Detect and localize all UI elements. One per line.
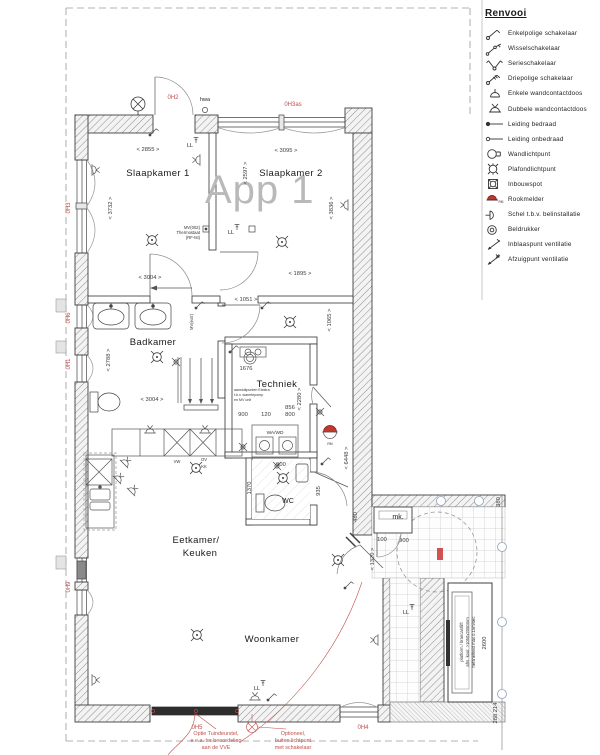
dimension: 1370	[247, 482, 253, 495]
ll-label: LL	[254, 686, 260, 692]
neighbour-wall-stubs	[56, 299, 66, 569]
washbasin-2	[135, 303, 171, 329]
dimension: < 3095 >	[275, 148, 299, 154]
legend-item-label: Wandlichtpunt	[508, 151, 550, 158]
socket-icon	[92, 674, 100, 686]
three-pole-switch-icon	[484, 72, 508, 86]
legend-item: Leiding onbedraad	[484, 132, 596, 147]
window-left-5	[77, 590, 93, 615]
wc-floor	[252, 460, 310, 519]
socket-icon	[370, 634, 378, 646]
rm-label: RM	[327, 442, 332, 446]
legend-item-label: Afzuigpunt ventilatie	[508, 256, 569, 263]
shower	[178, 357, 218, 410]
dimension: < 3836 >	[329, 196, 335, 220]
legend-item: Leiding bedraad	[484, 117, 596, 132]
window-left-4	[77, 558, 87, 582]
ceiling-light-icon	[277, 472, 289, 484]
socket-icon	[92, 164, 100, 176]
dimension: 935	[316, 486, 322, 496]
oven-label: OV	[201, 457, 207, 462]
tech-note: aansluitpunten Elektra	[234, 388, 270, 392]
legend-item: Wisselschakelaar	[484, 41, 596, 56]
two-way-switch-icon	[484, 42, 508, 56]
washer-label: WA/WD	[267, 430, 284, 436]
smoke-detector-icon	[322, 426, 338, 439]
hwa-pipe-icon	[202, 107, 207, 112]
dimension: < 6448 >	[344, 446, 350, 470]
room-label: Slaapkamer 1	[126, 168, 189, 179]
dimension: 1676	[240, 366, 253, 372]
option-note: buiten lichtpunt	[275, 738, 312, 744]
lift-note: afm. kooi: >1050x2050mm	[465, 617, 470, 667]
ll-label: LL	[403, 610, 409, 616]
ll-conduit-icon	[194, 138, 199, 144]
dimension: < 3004 >	[139, 275, 163, 281]
vent-icon	[239, 443, 247, 451]
legend-item: Enkele wandcontactdoos	[484, 86, 596, 101]
red-annotations	[151, 582, 362, 755]
legend-title: Renvooi	[485, 8, 596, 19]
optional-outdoor-light-icon	[247, 722, 258, 733]
socket-icon	[113, 471, 127, 485]
room-label: Slaapkamer 2	[259, 168, 322, 179]
recessed-spot-icon	[484, 177, 508, 191]
legend-item-label: Schel t.b.v. belinstallatie	[508, 211, 581, 218]
grid-bubble	[498, 543, 507, 552]
tech-note: en MV unit	[234, 398, 251, 402]
legend-item-label: Serieschakelaar	[508, 60, 556, 67]
kitchen-sink	[90, 489, 110, 500]
extract-vent-icon	[484, 253, 508, 267]
legend-item: Schel t.b.v. belinstallatie	[484, 207, 596, 222]
legend-item: Serieschakelaar	[484, 56, 596, 71]
toilet-badkamer	[90, 392, 120, 412]
legend-item-label: Enkele wandcontactdoos	[508, 90, 582, 97]
dimension: 856	[285, 405, 295, 411]
grid-bubble	[437, 497, 446, 506]
dimension: < 2597 >	[243, 161, 249, 185]
ceiling-light-icon	[484, 162, 508, 176]
dimension: 900	[399, 538, 409, 544]
bell-icon	[484, 208, 508, 222]
smoke-detector-icon: RM	[484, 193, 508, 207]
washbasin-1	[93, 303, 129, 329]
wall-light-icon	[484, 147, 508, 161]
legend-item-label: Leiding bedraad	[508, 121, 556, 128]
legend-item: Enkelpolige schakelaar	[484, 26, 596, 41]
socket-icon	[120, 455, 134, 469]
ceiling-light-icon	[191, 629, 203, 641]
dimension: < 3732 >	[108, 196, 114, 220]
room-label: Woonkamer	[245, 634, 300, 645]
legend-item: Inbouwspot	[484, 177, 596, 192]
legend-item: Wandlichtpunt	[484, 147, 596, 162]
legend-item-label: Enkelpolige schakelaar	[508, 30, 577, 37]
switch-icon	[321, 458, 331, 466]
option-note: e.e.a. ter beoordeling	[191, 738, 242, 744]
socket-icon	[340, 199, 348, 211]
appliance-x	[86, 459, 112, 485]
window-bottom-0h4	[340, 703, 378, 720]
thermostat-label: (RF-tst)	[186, 235, 201, 240]
mv-extract-label: MV(extr)	[189, 313, 194, 330]
frame-code: 0H4	[357, 725, 369, 731]
kitchen	[84, 429, 242, 530]
svg-text:RM: RM	[499, 200, 504, 204]
switch-icon	[344, 582, 354, 590]
dimension: < 2280 >	[297, 387, 303, 411]
dimension: 900	[276, 462, 286, 468]
legend-item-label: Inbouwspot	[508, 181, 542, 188]
vent-icon	[172, 358, 180, 366]
legend-item: Driepolige schakelaar	[484, 71, 596, 86]
grid-bubble	[475, 497, 484, 506]
dimension: 900	[238, 412, 248, 418]
supply-vent-icon	[484, 238, 508, 252]
frame-code: 0H6	[66, 312, 72, 324]
techniek-units	[240, 347, 298, 457]
option-note: aan de VVE	[202, 745, 231, 751]
frame-code: 0H2	[167, 95, 179, 101]
legend-item-label: Leiding onbedraad	[508, 136, 564, 143]
window-left-2	[77, 305, 93, 328]
room-label: Keuken	[183, 548, 218, 559]
floorplan-page: App 1 Slaapkamer 1 Slaapkamer 2 Badkamer…	[0, 0, 600, 755]
unwired-conduit-icon	[484, 132, 508, 146]
ceiling-light-icon	[332, 554, 344, 566]
series-switch-icon	[484, 57, 508, 71]
room-label: WC	[282, 498, 294, 505]
room-label: Eetkamer/	[173, 535, 220, 546]
dishwasher-label: VW	[174, 459, 181, 464]
legend-item: RM Rookmelder	[484, 192, 596, 207]
dimension: < 1051 >	[235, 297, 259, 303]
lift-note: platform / brancardlift	[459, 622, 464, 662]
switch-icon	[267, 694, 277, 702]
dimension: 120	[261, 412, 271, 418]
appliance-x	[164, 429, 190, 456]
legend-item-label: Dubbele wandcontactdoos	[508, 106, 587, 113]
dimension: < 3004 >	[141, 397, 165, 403]
hwa-label: hwa	[200, 97, 211, 103]
elevator-door	[446, 620, 450, 666]
socket-icon	[192, 154, 200, 166]
option-note: Optie Tuindeurstel,	[193, 731, 239, 737]
socket-icon	[127, 483, 141, 497]
option-note: Optioneel,	[281, 731, 306, 737]
window-top-0h3as	[218, 115, 345, 133]
option-note: met schakelaar	[275, 745, 312, 751]
window-left-3	[77, 355, 93, 382]
ll-label: LL	[228, 230, 234, 236]
tech-note: t.b.v. warmtepomp	[234, 393, 263, 397]
legend-item: Beldrukker	[484, 222, 596, 237]
single-pole-switch-icon	[484, 27, 508, 41]
dimension: 100	[377, 537, 387, 543]
red-marker	[437, 548, 443, 560]
legend-item-label: Beldrukker	[508, 226, 540, 233]
door-slaapkamer2	[220, 252, 258, 290]
outdoor-wall-light-icon	[131, 97, 145, 115]
ceiling-light-icon	[151, 351, 163, 363]
ceiling-light-icon	[146, 234, 158, 246]
single-socket-icon	[484, 87, 508, 101]
room-label: Badkamer	[130, 337, 177, 348]
dimension: 2600	[482, 637, 488, 650]
dimension: 288 214	[493, 702, 499, 724]
fridge-label: KK	[201, 464, 207, 469]
dimension: < 2788 >	[106, 348, 112, 372]
ceiling-light-icon	[190, 462, 202, 474]
ll-label: LL	[187, 143, 193, 149]
legend-item-label: Wisselschakelaar	[508, 45, 560, 52]
dimension: < 1065 >	[327, 308, 333, 332]
legend-item: Dubbele wandcontactdoos	[484, 101, 596, 116]
bell-push-icon	[484, 223, 508, 237]
ceiling-light-icon	[276, 236, 288, 248]
legend-panel: Renvooi Enkelpolige schakelaar Wisselsch…	[484, 6, 596, 268]
frame-code: 0H9	[66, 581, 72, 593]
legend-item-label: Driepolige schakelaar	[508, 75, 573, 82]
dimension: 480	[353, 512, 359, 522]
room-label: mk.	[392, 514, 403, 521]
dimension: < 2855 >	[137, 147, 161, 153]
lift-note: hefsnelheid max 0.15m/sec	[471, 617, 476, 668]
frame-code: 0H3as	[284, 102, 301, 108]
dimension: < 1895 >	[289, 271, 313, 277]
frame-code: 0H3	[66, 202, 72, 214]
legend-item: Inblaaspunt ventilatie	[484, 237, 596, 252]
ll-conduit-icon	[261, 681, 266, 687]
legend-item: Plafondlichtpunt	[484, 162, 596, 177]
legend-item: Afzuigpunt ventilatie	[484, 252, 596, 267]
dimension: 800	[285, 412, 295, 418]
legend-item-label: Inblaaspunt ventilatie	[508, 241, 572, 248]
dimension: 380	[496, 497, 502, 507]
wired-conduit-icon	[484, 117, 508, 131]
grid-bubble	[498, 618, 507, 627]
double-socket-icon	[484, 102, 508, 116]
socket-icon	[249, 692, 261, 700]
legend-item-label: Plafondlichtpunt	[508, 166, 556, 173]
frame-code: 0H1	[66, 358, 72, 370]
dimension: < 1320 >	[370, 547, 376, 571]
grid-bubble	[498, 690, 507, 699]
ll-conduit-icon	[235, 225, 240, 231]
ceiling-light-icon	[284, 316, 296, 328]
legend-item-label: Rookmelder	[508, 196, 544, 203]
